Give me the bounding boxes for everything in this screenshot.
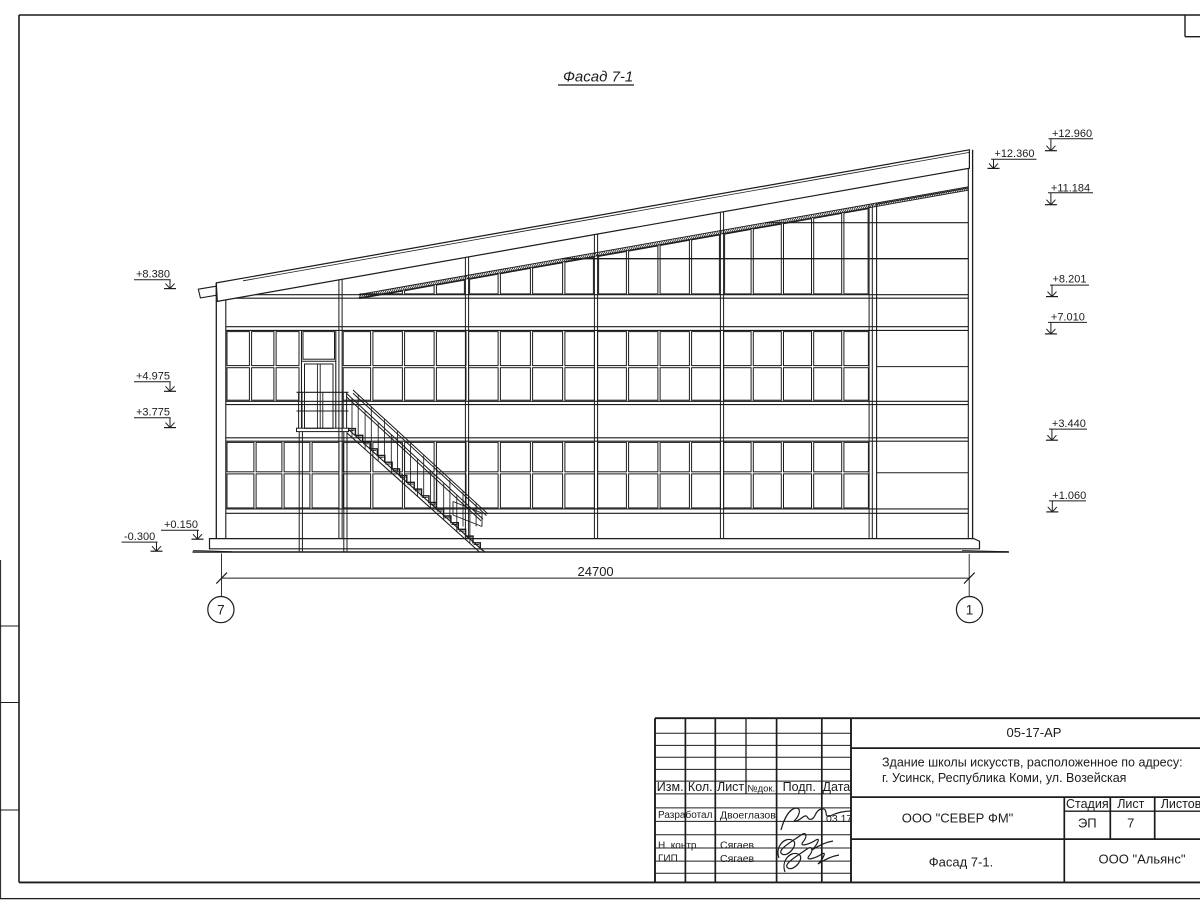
svg-text:Изм.: Изм.	[657, 780, 684, 794]
svg-text:Лист: Лист	[717, 780, 744, 794]
svg-text:03.17: 03.17	[826, 813, 852, 825]
svg-text:Двоеглазов: Двоеглазов	[720, 810, 776, 822]
svg-text:Листов: Листов	[1161, 797, 1200, 811]
svg-text:Разработал: Разработал	[658, 809, 713, 821]
svg-text:ООО "СЕВЕР ФМ": ООО "СЕВЕР ФМ"	[902, 811, 1014, 826]
svg-text:+0.150: +0.150	[164, 519, 198, 531]
svg-text:Лист: Лист	[1117, 797, 1144, 811]
svg-text:ООО "Альянс": ООО "Альянс"	[1099, 852, 1186, 867]
svg-text:7: 7	[1127, 816, 1134, 831]
svg-text:+3.775: +3.775	[136, 407, 170, 419]
svg-text:Дата: Дата	[823, 780, 851, 794]
svg-text:05-17-АР: 05-17-АР	[1007, 725, 1062, 740]
svg-text:Сягаев: Сягаев	[720, 853, 755, 865]
svg-text:ЭП: ЭП	[1078, 816, 1097, 831]
svg-text:г. Усинск, Республика Коми, ул: г. Усинск, Республика Коми, ул. Возейска…	[882, 771, 1126, 785]
svg-text:Кол.: Кол.	[688, 780, 713, 794]
svg-text:+12.960: +12.960	[1052, 128, 1092, 140]
svg-text:+4.975: +4.975	[136, 371, 170, 383]
svg-text:Н. контр.: Н. контр.	[658, 840, 699, 851]
svg-text:7: 7	[217, 602, 225, 617]
svg-text:+3.440: +3.440	[1052, 418, 1086, 430]
svg-text:+1.060: +1.060	[1052, 490, 1086, 502]
svg-text:+7.010: +7.010	[1051, 312, 1085, 324]
svg-text:24700: 24700	[578, 564, 614, 579]
svg-text:Здание школы искусств, располо: Здание школы искусств, расположенное по …	[882, 755, 1183, 769]
svg-text:+8.201: +8.201	[1053, 274, 1087, 286]
svg-text:Фасад 7-1.: Фасад 7-1.	[929, 855, 993, 870]
svg-text:+12.360: +12.360	[994, 148, 1034, 160]
svg-text:1: 1	[966, 602, 974, 617]
svg-text:+8.380: +8.380	[136, 269, 170, 281]
svg-text:Фасад 7-1: Фасад 7-1	[563, 69, 633, 86]
svg-text:Стадия: Стадия	[1066, 797, 1109, 811]
svg-text:№док.: №док.	[747, 783, 775, 794]
svg-text:-0.300: -0.300	[124, 531, 155, 543]
svg-text:ГИП: ГИП	[658, 854, 678, 865]
svg-text:Подп.: Подп.	[783, 780, 816, 794]
svg-text:Сягаев: Сягаев	[720, 840, 755, 852]
